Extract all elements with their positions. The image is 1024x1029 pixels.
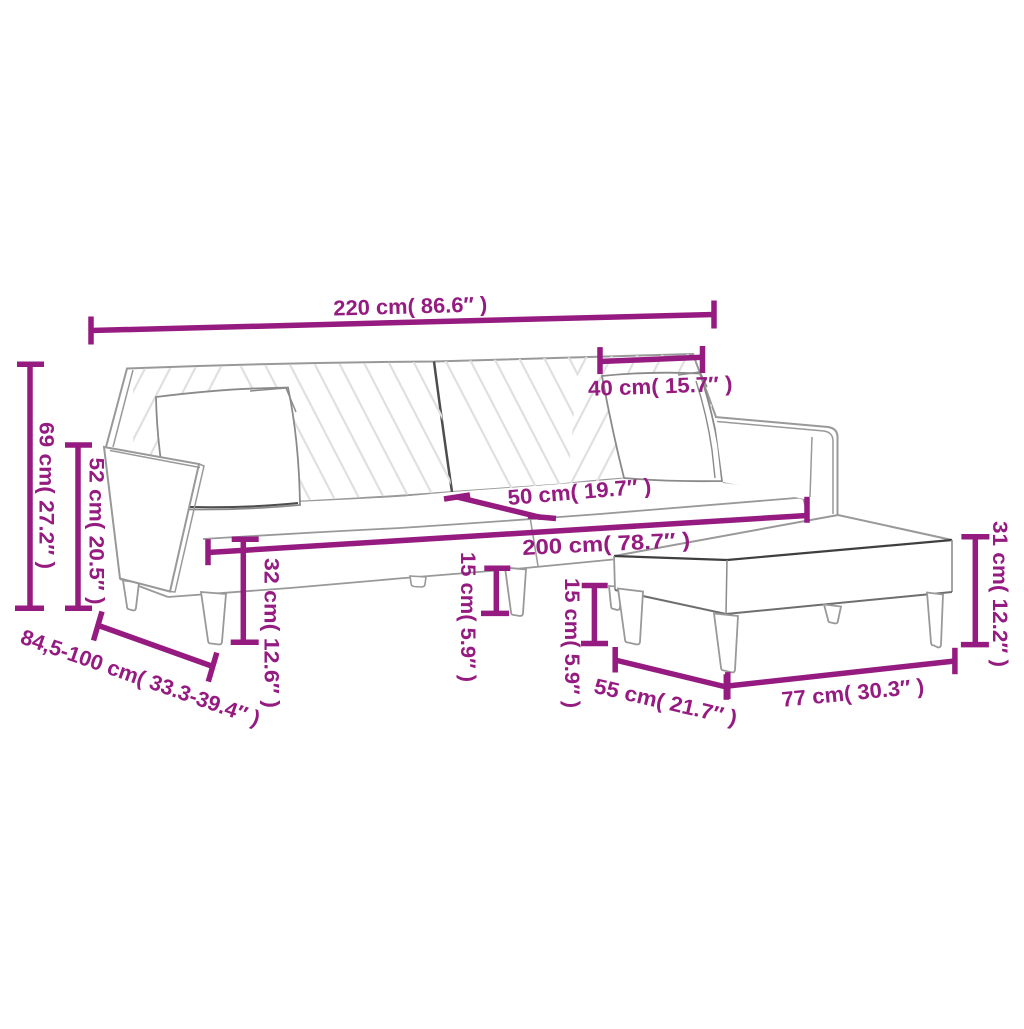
svg-text:15 cm( 5.9″ ): 15 cm( 5.9″ ) [456,552,480,682]
svg-text:15 cm( 5.9″ ): 15 cm( 5.9″ ) [560,578,584,708]
svg-text:69 cm( 27.2″ ): 69 cm( 27.2″ ) [35,422,59,569]
svg-text:31 cm( 12.2″ ): 31 cm( 12.2″ ) [988,521,1012,667]
svg-text:52 cm( 20.5″ ): 52 cm( 20.5″ ) [85,458,109,605]
svg-text:220 cm( 86.6″ ): 220 cm( 86.6″ ) [333,292,488,320]
svg-text:40 cm( 15.7″ ): 40 cm( 15.7″ ) [588,372,733,401]
svg-text:32 cm( 12.6″ ): 32 cm( 12.6″ ) [260,558,284,708]
